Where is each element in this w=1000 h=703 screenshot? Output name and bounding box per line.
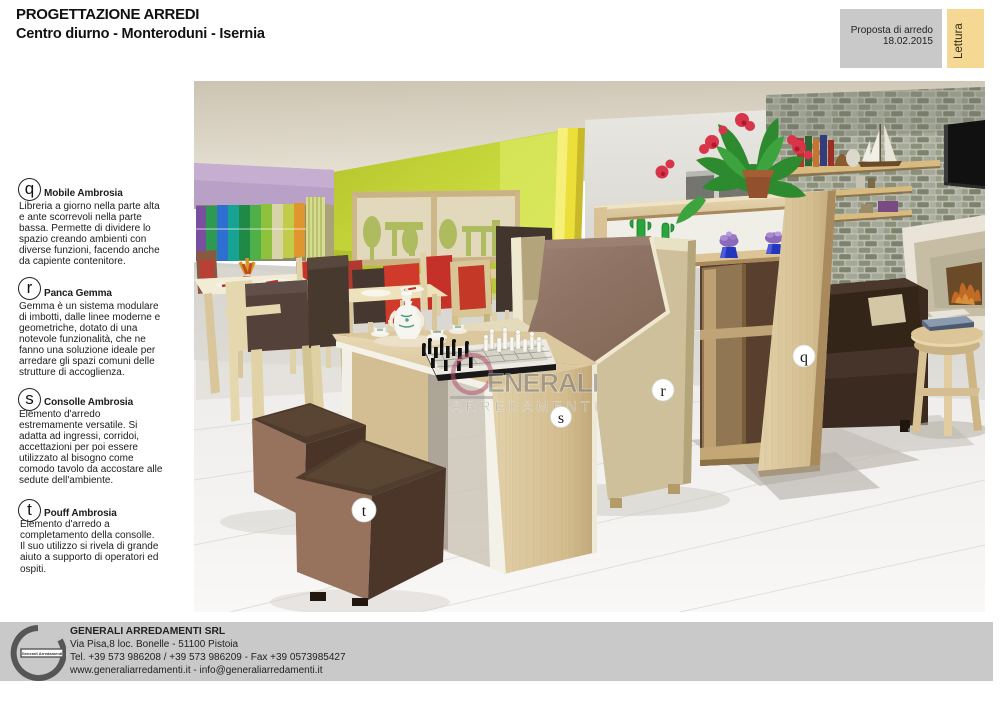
svg-text:Generali Arredamenti: Generali Arredamenti xyxy=(22,651,63,656)
svg-text:q: q xyxy=(800,349,808,366)
svg-text:r: r xyxy=(660,383,666,400)
svg-text:s: s xyxy=(558,410,564,427)
svg-text:t: t xyxy=(362,503,367,520)
svg-text:ARREDAMENTI: ARREDAMENTI xyxy=(452,398,602,414)
svg-text:ENERALI: ENERALI xyxy=(487,368,599,398)
